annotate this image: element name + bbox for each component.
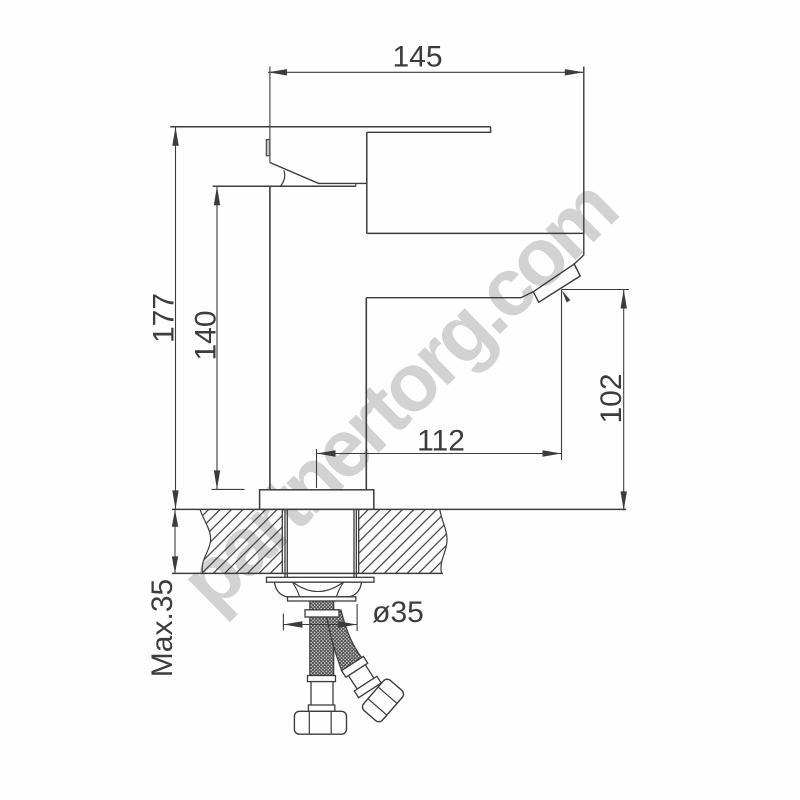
svg-text:145: 145 bbox=[392, 41, 442, 74]
svg-text:140: 140 bbox=[190, 310, 223, 360]
svg-text:Max.35: Max.35 bbox=[146, 579, 179, 677]
svg-text:ø35: ø35 bbox=[372, 596, 424, 629]
svg-text:102: 102 bbox=[595, 373, 628, 423]
svg-text:177: 177 bbox=[148, 293, 181, 343]
svg-text:112: 112 bbox=[417, 425, 465, 458]
